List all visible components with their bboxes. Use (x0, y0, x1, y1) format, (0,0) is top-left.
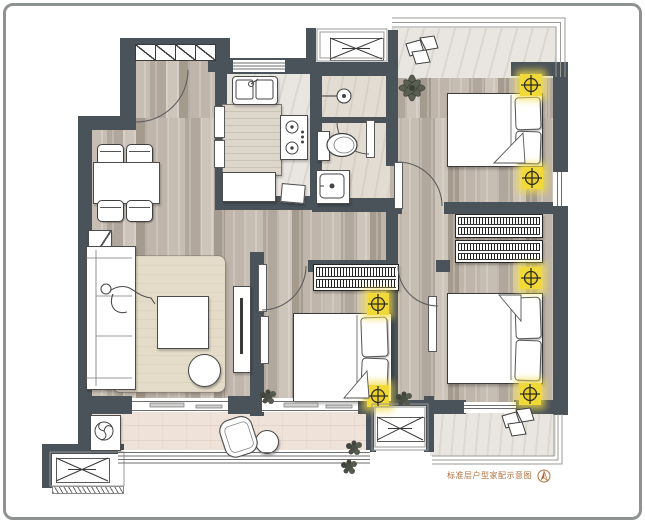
pillow (514, 131, 541, 165)
bedroom-east-window (464, 402, 516, 413)
shoe-closet-cell (195, 44, 216, 61)
pillow (514, 340, 541, 382)
wall (436, 260, 450, 272)
wardrobe (455, 214, 543, 238)
position-marker (519, 383, 541, 405)
bedroom-north-door-leaf (394, 162, 403, 209)
pillow (514, 297, 541, 340)
bath-door-leaf (366, 120, 375, 158)
pouf (188, 354, 221, 387)
wall (318, 60, 388, 76)
tv-cabinet (233, 286, 251, 373)
shoe-closet-cell (135, 44, 156, 61)
coffee-table (157, 296, 209, 349)
wall (120, 38, 136, 122)
balcony-glazing (118, 450, 370, 464)
terrace-floor (430, 412, 556, 456)
bedroom-middle-door-leaf (258, 264, 267, 312)
gas-stove (280, 115, 308, 160)
washing-machine (90, 415, 121, 451)
wash-basin (316, 170, 350, 204)
toilet-tank (317, 131, 330, 161)
kitchen-cabinet (214, 106, 225, 138)
shower-curb (315, 117, 388, 123)
plan-caption: 标准层户型家配示意图 (420, 470, 532, 481)
balcony-table (255, 430, 279, 454)
south-balcony-floor (90, 408, 370, 456)
pillow (360, 317, 388, 358)
dining-chair (97, 200, 124, 222)
wardrobe (455, 240, 543, 263)
mirror-panel (260, 316, 269, 364)
wall (444, 202, 556, 214)
floor-plan: 标准层户型家配示意图 (0, 0, 645, 523)
kitchen-cabinet (214, 140, 225, 168)
tray (280, 183, 306, 204)
wall (386, 74, 398, 166)
dining-chair (126, 200, 153, 222)
east-window (553, 172, 568, 206)
position-marker (367, 293, 389, 315)
position-marker (521, 167, 543, 189)
ac-unit-box-top (330, 38, 384, 61)
position-marker (367, 385, 389, 407)
fridge (222, 172, 276, 202)
wall (42, 444, 52, 488)
position-marker (520, 267, 542, 289)
ac-unit-box-south (377, 417, 425, 442)
wardrobe (313, 264, 399, 291)
wall (78, 396, 132, 414)
pillow (514, 97, 541, 131)
sliding-door-west (132, 398, 228, 412)
mirror-panel (428, 296, 437, 352)
kitchen-window (233, 60, 285, 72)
wall (228, 396, 262, 414)
kitchen-island (222, 104, 282, 176)
platform-hatch (52, 486, 124, 494)
position-marker (520, 74, 542, 96)
wall (553, 62, 568, 415)
shoe-closet-cell (155, 44, 176, 61)
sofa (86, 246, 136, 390)
dining-table (93, 162, 160, 204)
ac-unit-box-southwest (56, 458, 110, 483)
shoe-closet-cell (175, 44, 196, 61)
kitchen-sink (232, 76, 278, 105)
